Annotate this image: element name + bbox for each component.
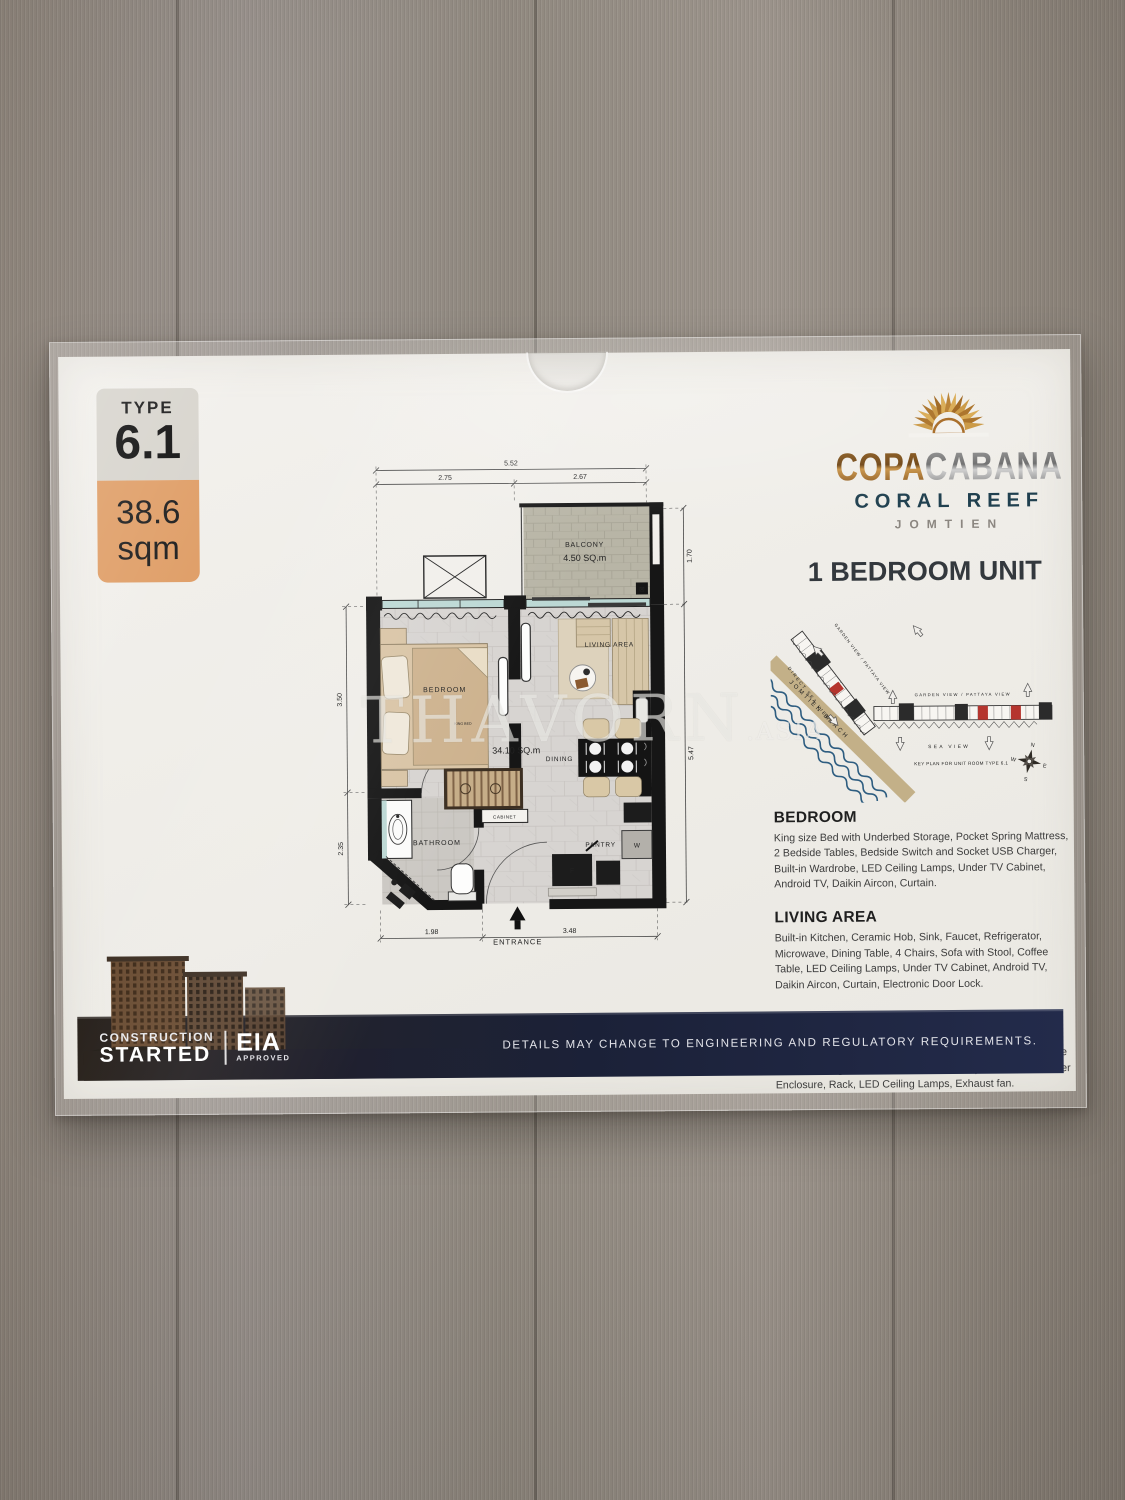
king-bed-label: KING BED <box>454 722 472 726</box>
bedroom-label: BEDROOM <box>423 687 466 694</box>
construction-status: CONSTRUCTION STARTED EIA APPROVED <box>99 1029 290 1065</box>
bed <box>380 628 488 787</box>
compass-n: N <box>1030 742 1035 749</box>
dim-right-main: 5.47 <box>688 746 695 760</box>
brand-wordmark: COPACABANA <box>831 446 1067 487</box>
area-value: 38.6 <box>97 494 199 530</box>
keyplan-label-garden: GARDEN VIEW / PATTAYA VIEW <box>915 692 1011 698</box>
floorplan-drawing: ⊠ BALCONY 4.50 SQ.m <box>331 450 705 983</box>
section-bedroom-title: BEDROOM <box>774 807 1070 827</box>
keyplan-horizontal-wing <box>874 702 1052 728</box>
dim-left-bottom: 2.35 <box>338 842 345 856</box>
compass-e: E <box>1042 763 1047 770</box>
section-living-area: LIVING AREA Built-in Kitchen, Ceramic Ho… <box>774 907 1071 993</box>
fridge-label: F <box>570 868 574 875</box>
beach-strip: JOMTIEN BEACH <box>770 655 915 803</box>
type-badge: TYPE 6.1 38.6 sqm <box>96 388 200 582</box>
pantry-label: PANTRY <box>585 842 616 849</box>
compass-s: S <box>1023 777 1028 784</box>
footer-banner: CONSTRUCTION STARTED EIA APPROVED DETAIL… <box>77 1009 1063 1081</box>
brand-subtitle: CORAL REEF <box>831 489 1067 514</box>
dim-bottom-left: 1.98 <box>425 929 439 936</box>
disclaimer-text: DETAILS MAY CHANGE TO ENGINEERING AND RE… <box>502 1035 1037 1051</box>
interior-area-label: 34.10 SQ.m <box>492 745 540 755</box>
eia-sub-label: APPROVED <box>236 1053 290 1062</box>
dim-left-top: 3.50 <box>337 693 344 707</box>
keyplan-label-sea: SEA VIEW <box>928 744 970 750</box>
compass-icon: N E S W <box>1007 739 1051 787</box>
compass-w: W <box>1010 757 1017 764</box>
section-living-body: Built-in Kitchen, Ceramic Hob, Sink, Fau… <box>775 929 1071 993</box>
ac-ledge <box>424 556 486 598</box>
floorplan-poster: TYPE 6.1 38.6 sqm <box>58 349 1076 1099</box>
dim-right-top: 1.70 <box>687 549 694 563</box>
dim-top-right: 2.67 <box>573 474 587 481</box>
dining-label: DINING <box>546 756 574 763</box>
section-bedroom: BEDROOM King size Bed with Underbed Stor… <box>774 807 1071 893</box>
balcony-area: 4.50 SQ.m <box>563 553 606 563</box>
type-badge-area: 38.6 sqm <box>97 480 200 582</box>
living-label: LIVING AREA <box>585 641 634 648</box>
brand-logo: COPACABANA CORAL REEF JOMTIEN <box>830 389 1067 532</box>
dim-top-left: 2.75 <box>438 475 452 482</box>
keyplan-drawing: JOMTIEN BEACH <box>770 609 1083 803</box>
entrance-label: ENTRANCE <box>493 937 542 946</box>
brand-word-copa: COPA <box>836 445 926 489</box>
svg-text:⊠: ⊠ <box>639 586 645 593</box>
eia-badge: EIA APPROVED <box>236 1031 290 1063</box>
plastic-sleeve: TYPE 6.1 38.6 sqm <box>49 334 1087 1116</box>
dim-top-total: 5.52 <box>504 460 518 467</box>
keyplan-caption: KEY PLAN FOR UNIT ROOM TYPE 6.1 <box>914 761 1008 767</box>
type-value: 6.1 <box>97 418 199 469</box>
unit-heading: 1 BEDROOM UNIT <box>770 555 1080 588</box>
type-badge-top: TYPE 6.1 <box>96 388 199 481</box>
construction-divider <box>224 1030 226 1064</box>
area-unit: sqm <box>97 530 199 566</box>
cabinet-label: CABINET <box>493 814 516 819</box>
keyplan-unit-highlight-2 <box>978 706 988 720</box>
keyplan-unit-highlight-3 <box>1011 705 1021 719</box>
entrance-arrow-icon <box>509 906 525 929</box>
brand-word-cabana: CABANA <box>925 444 1063 489</box>
brand-location: JOMTIEN <box>831 516 1067 532</box>
balcony-label: BALCONY <box>565 542 604 549</box>
eia-label: EIA <box>236 1031 290 1054</box>
construction-text: CONSTRUCTION STARTED <box>99 1030 214 1066</box>
washer-label: W <box>634 842 641 849</box>
section-bedroom-body: King size Bed with Underbed Storage, Poc… <box>774 829 1070 893</box>
dim-bottom-right: 3.48 <box>563 928 577 935</box>
section-living-title: LIVING AREA <box>774 907 1070 927</box>
sun-icon <box>883 389 1013 442</box>
bathroom-label: BATHROOM <box>413 840 461 847</box>
wardrobe <box>445 769 521 808</box>
construction-bottom: STARTED <box>99 1044 214 1066</box>
